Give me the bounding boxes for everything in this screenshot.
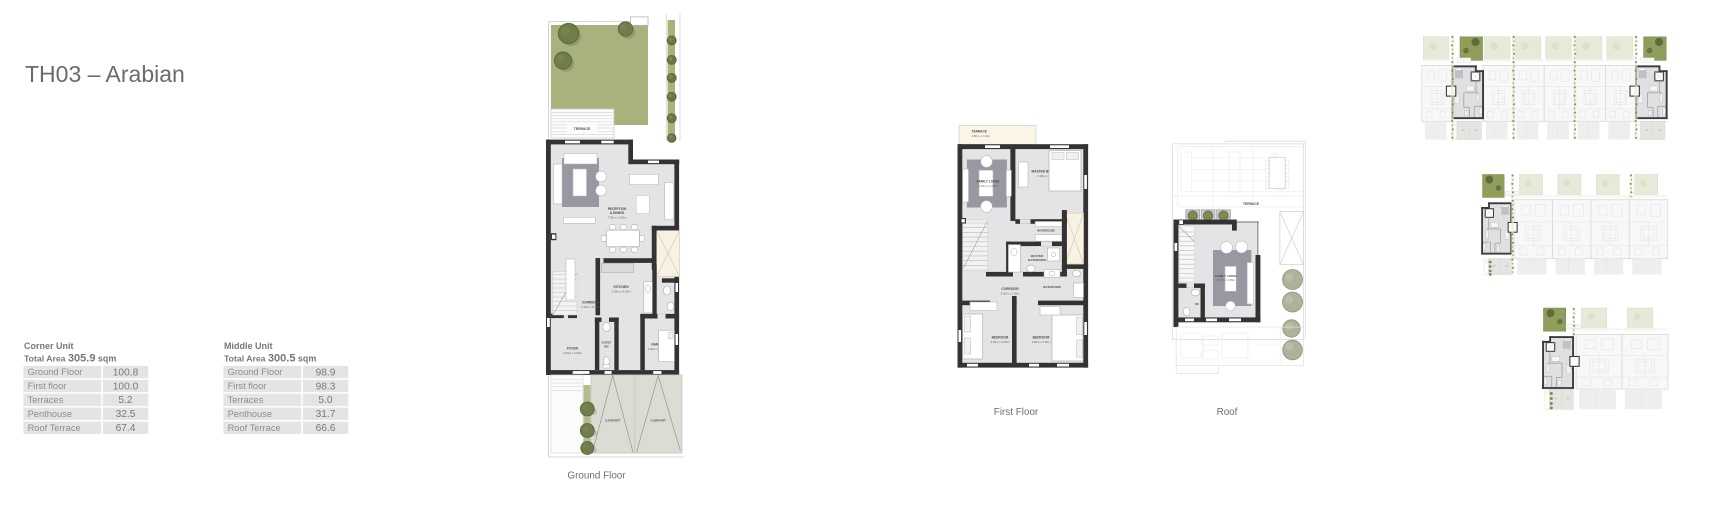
svg-text:3.20m x 4.20m: 3.20m x 4.20m [978, 184, 998, 188]
svg-text:CARPORT: CARPORT [605, 419, 620, 423]
svg-text:Ground Floor: Ground Floor [228, 367, 283, 377]
svg-text:First floor: First floor [228, 381, 267, 391]
svg-text:Roof Terrace: Roof Terrace [28, 423, 81, 433]
svg-text:31.7: 31.7 [316, 409, 336, 420]
svg-text:Total Area 300.5 sqm: Total Area 300.5 sqm [224, 353, 316, 365]
svg-text:BATHROOM: BATHROOM [1028, 258, 1046, 262]
svg-text:2.60m x 2.00m: 2.60m x 2.00m [563, 351, 583, 355]
svg-text:Penthouse: Penthouse [228, 409, 272, 419]
svg-text:BEDROOM: BEDROOM [992, 336, 1009, 340]
svg-text:3.29m x 3.18m: 3.29m x 3.18m [611, 290, 631, 294]
svg-text:Roof: Roof [1217, 407, 1238, 418]
svg-text:TERRACE: TERRACE [1243, 202, 1260, 206]
svg-text:WARDROBE: WARDROBE [1037, 229, 1055, 233]
svg-text:& DINING: & DINING [610, 211, 625, 215]
svg-text:BATHROOM: BATHROOM [1043, 285, 1061, 289]
svg-text:32.5: 32.5 [116, 409, 136, 420]
svg-text:4.80m x 1.10m: 4.80m x 1.10m [972, 134, 991, 138]
svg-text:TERRACE: TERRACE [574, 127, 591, 131]
svg-text:Middle Unit: Middle Unit [224, 341, 273, 351]
svg-text:KITCHEN: KITCHEN [613, 285, 629, 289]
svg-text:FOYER: FOYER [567, 347, 579, 351]
svg-text:98.3: 98.3 [316, 381, 336, 392]
svg-text:100.8: 100.8 [113, 367, 139, 378]
svg-text:3.60m x 3.50m: 3.60m x 3.50m [1031, 340, 1051, 344]
svg-text:Roof Terrace: Roof Terrace [228, 423, 281, 433]
svg-text:CORRIDOR: CORRIDOR [1001, 287, 1019, 291]
svg-text:Total Area 305.9 sqm: Total Area 305.9 sqm [24, 353, 116, 365]
svg-text:67.4: 67.4 [116, 423, 136, 434]
svg-text:3.00m x 3.45m: 3.00m x 3.45m [990, 340, 1010, 344]
svg-text:Penthouse: Penthouse [28, 409, 72, 419]
svg-text:Ground Floor: Ground Floor [567, 471, 626, 482]
svg-text:FAMILY LIVING: FAMILY LIVING [1215, 274, 1237, 278]
svg-text:Corner Unit: Corner Unit [24, 341, 74, 351]
svg-text:7.35m x 5.50m: 7.35m x 5.50m [607, 216, 627, 220]
svg-text:First floor: First floor [28, 381, 67, 391]
svg-text:DN: DN [1195, 303, 1199, 306]
svg-text:100.0: 100.0 [113, 381, 139, 392]
svg-text:First Floor: First Floor [994, 407, 1039, 418]
svg-text:3.70m x 3.65m: 3.70m x 3.65m [1217, 278, 1236, 282]
svg-text:5.2: 5.2 [118, 395, 132, 406]
svg-text:BEDROOM: BEDROOM [1033, 336, 1050, 340]
svg-text:TH03 – Arabian: TH03 – Arabian [25, 61, 185, 87]
svg-text:98.9: 98.9 [316, 367, 336, 378]
svg-text:Ground Floor: Ground Floor [28, 367, 83, 377]
svg-text:3.20m x 1.20m: 3.20m x 1.20m [1000, 292, 1020, 296]
svg-text:Terraces: Terraces [28, 395, 64, 405]
svg-text:CORRIDOR: CORRIDOR [582, 301, 600, 305]
svg-text:CARPORT: CARPORT [651, 419, 666, 423]
svg-text:5.0: 5.0 [318, 395, 332, 406]
svg-text:66.6: 66.6 [316, 423, 336, 434]
svg-text:1.50m x 3.30m: 1.50m x 3.30m [581, 305, 601, 309]
svg-text:FAMILY LIVING: FAMILY LIVING [977, 180, 1000, 184]
svg-text:Terraces: Terraces [228, 395, 264, 405]
